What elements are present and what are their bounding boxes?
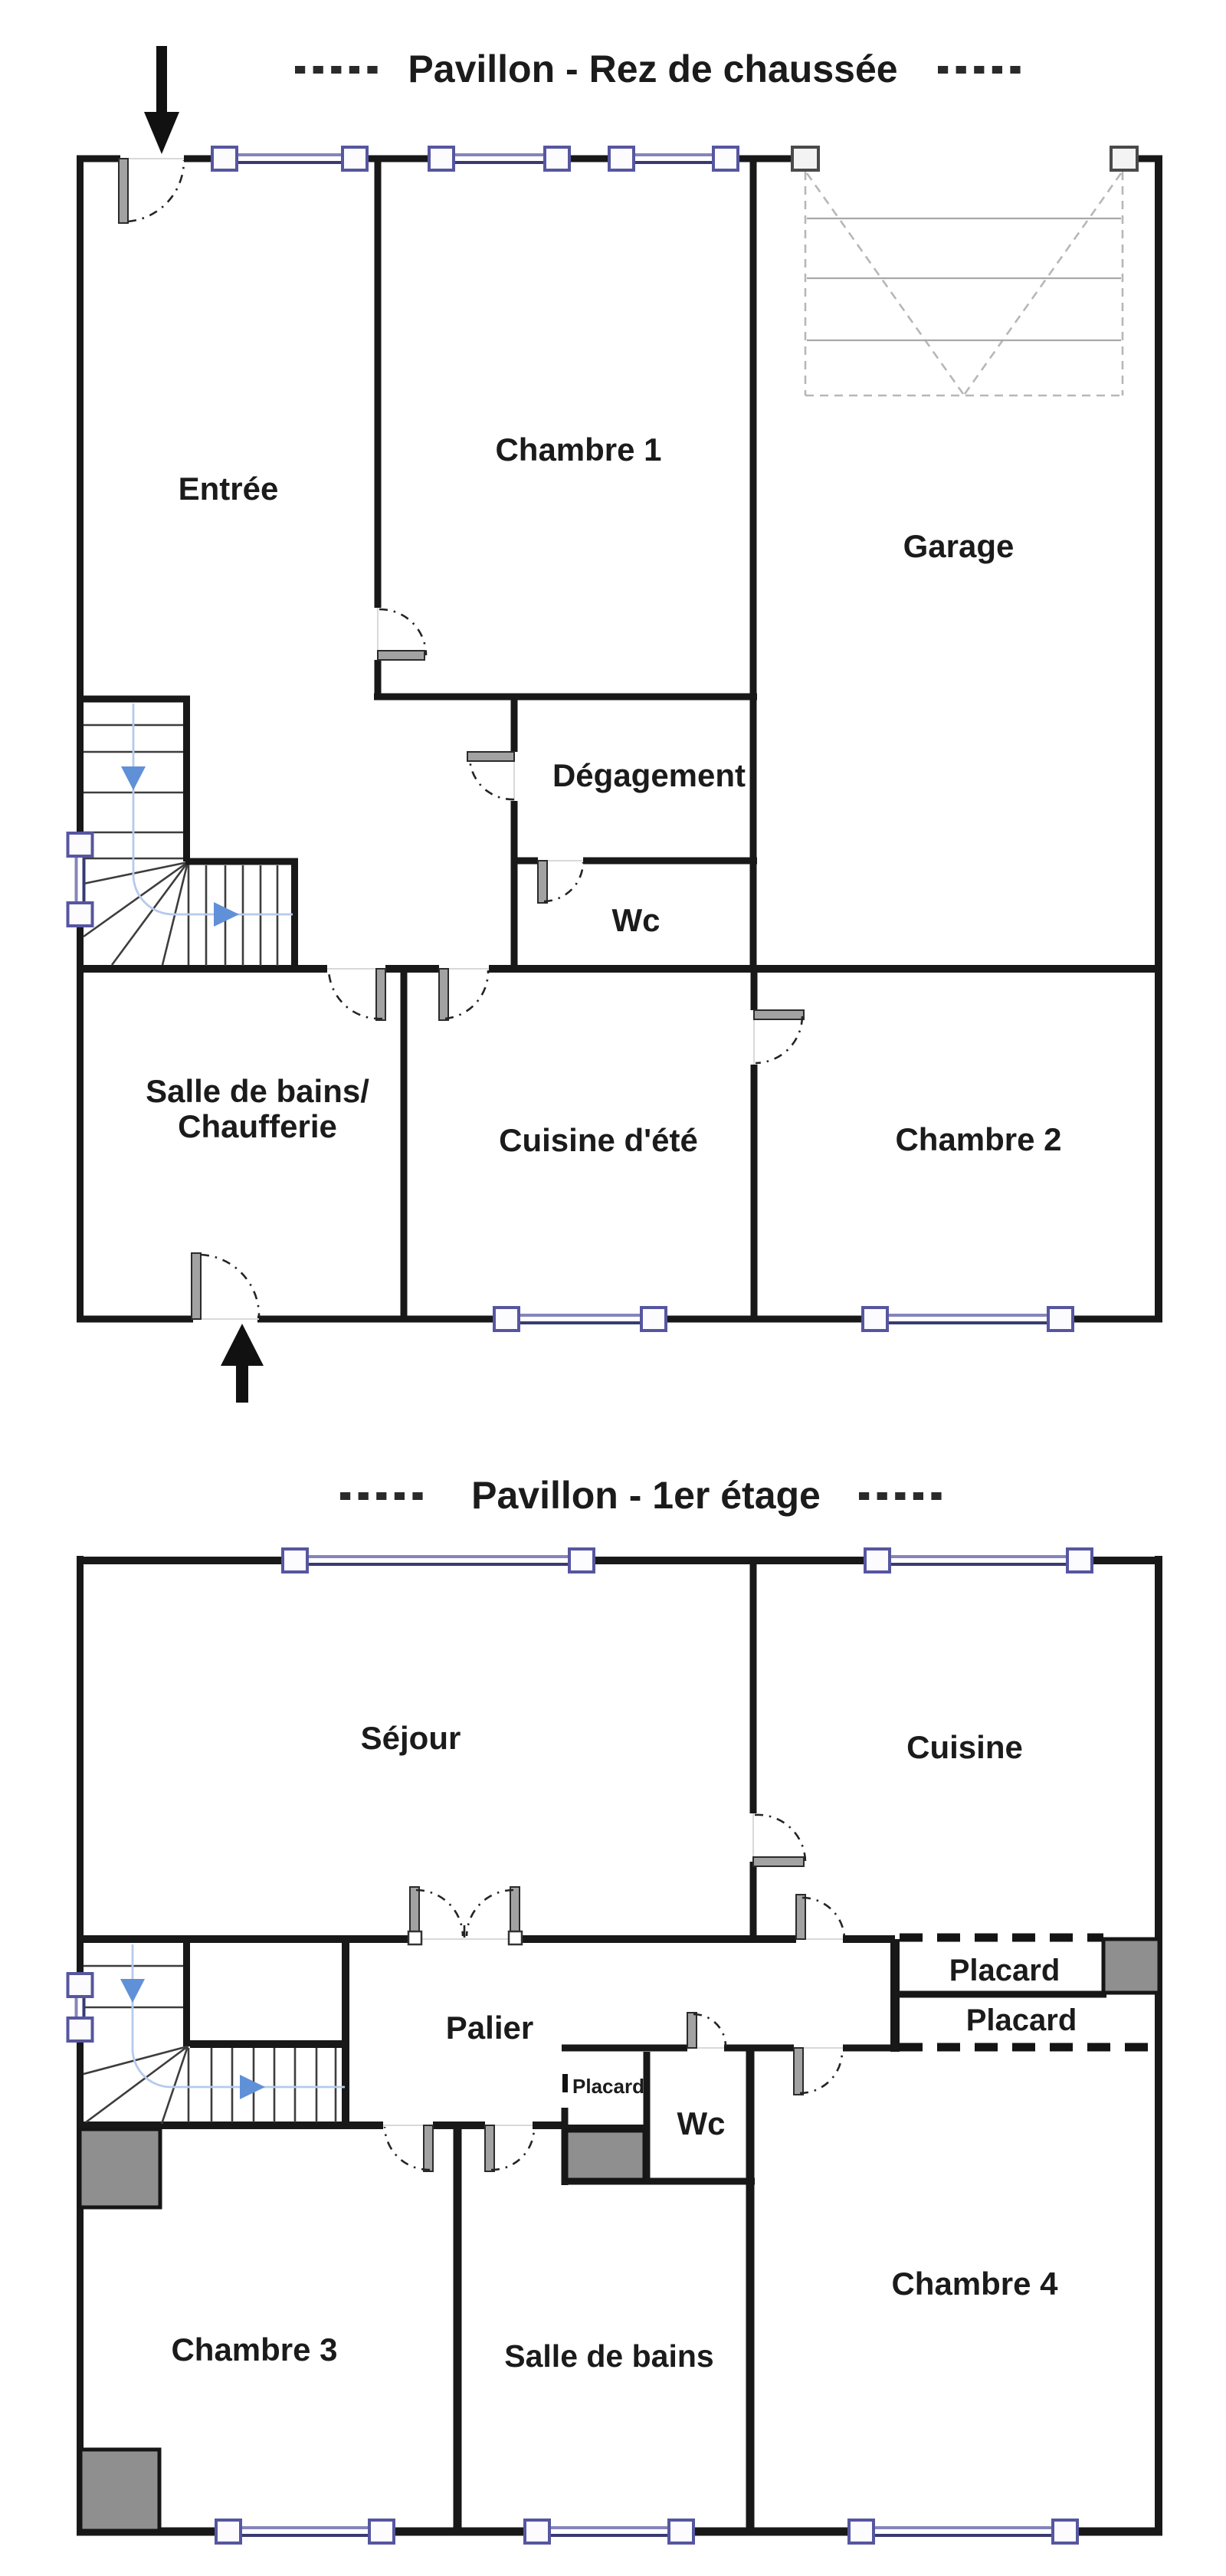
svg-text:Pavillon - Rez de chaussée: Pavillon - Rez de chaussée xyxy=(408,48,897,90)
svg-text:Cuisine d'été: Cuisine d'été xyxy=(499,1122,698,1158)
svg-text:Wc: Wc xyxy=(612,902,661,938)
svg-text:Chambre 3: Chambre 3 xyxy=(171,2332,337,2368)
svg-text:Chambre 4: Chambre 4 xyxy=(891,2266,1058,2302)
svg-text:Entrée: Entrée xyxy=(179,471,279,507)
svg-text:Salle de bains: Salle de bains xyxy=(504,2338,713,2374)
svg-text:Placard: Placard xyxy=(572,2075,644,2098)
svg-text:Chaufferie: Chaufferie xyxy=(178,1108,337,1144)
svg-text:Séjour: Séjour xyxy=(361,1720,461,1756)
svg-text:Palier: Palier xyxy=(446,2010,533,2046)
svg-text:Garage: Garage xyxy=(903,528,1015,564)
svg-text:Wc: Wc xyxy=(677,2105,726,2141)
svg-text:Dégagement: Dégagement xyxy=(552,757,746,793)
svg-text:Chambre 1: Chambre 1 xyxy=(495,432,661,468)
svg-text:Pavillon - 1er étage: Pavillon - 1er étage xyxy=(471,1474,821,1517)
svg-text:Placard: Placard xyxy=(949,1954,1060,1987)
svg-text:Placard: Placard xyxy=(966,2003,1077,2037)
svg-text:Salle de bains/: Salle de bains/ xyxy=(146,1073,369,1109)
svg-text:Chambre 2: Chambre 2 xyxy=(895,1121,1061,1157)
svg-text:Cuisine: Cuisine xyxy=(906,1729,1023,1765)
